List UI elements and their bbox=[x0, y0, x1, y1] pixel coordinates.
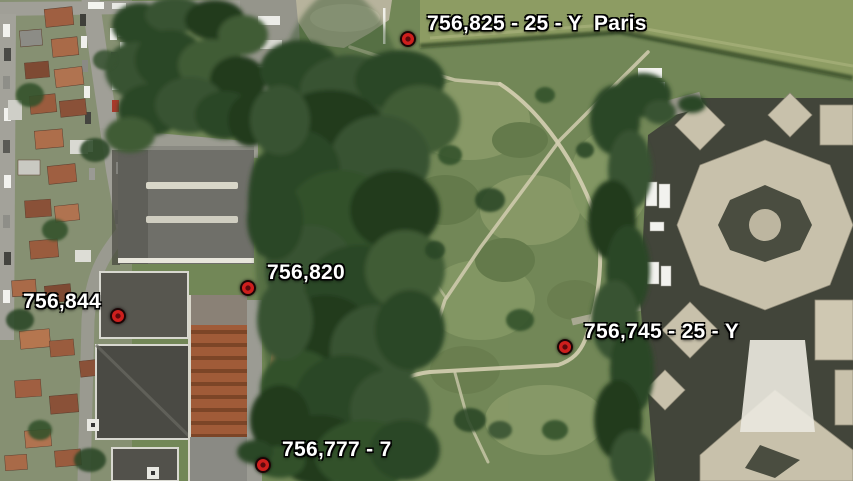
placemark-label: 756,820 bbox=[267, 262, 345, 283]
placemark-label: 756,844 bbox=[23, 291, 101, 312]
placemark-dot-icon bbox=[255, 457, 271, 473]
placemark-label: 756,777 - 7 bbox=[282, 439, 392, 460]
placemark-dot-icon bbox=[110, 308, 126, 324]
placemark-dot-icon bbox=[240, 280, 256, 296]
placemark-label: 756,825 - 25 - Y Paris bbox=[427, 13, 647, 34]
placemark-dot-icon bbox=[400, 31, 416, 47]
placemark-dot-icon bbox=[557, 339, 573, 355]
aerial-imagery bbox=[0, 0, 853, 481]
placemark-label: 756,745 - 25 - Y bbox=[584, 321, 739, 342]
apartment-complex bbox=[640, 92, 853, 481]
satellite-map[interactable]: 756,825 - 25 - Y Paris 756,820 756,844 7… bbox=[0, 0, 853, 481]
